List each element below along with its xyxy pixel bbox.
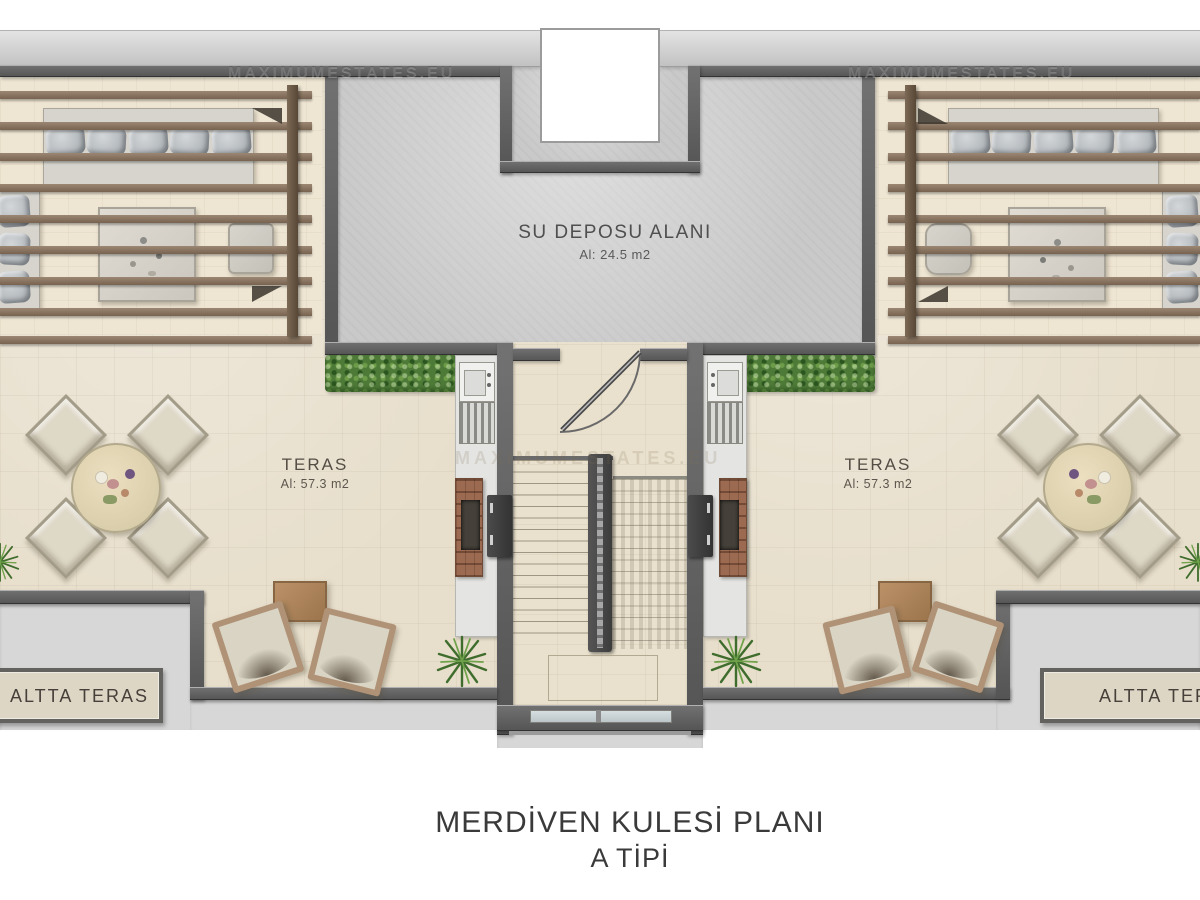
terrace-label-left: TERAS [245,455,385,475]
corner-plant [433,632,491,690]
sink-unit [459,362,495,402]
pergola-slat [0,277,312,285]
pergola-slat [0,153,312,161]
sofa-pillow [211,126,252,157]
lower-terrace-label-right: ALTTA TERAS [1099,686,1200,707]
plan-title: MERDİVEN KULESİ PLANI A TİPİ [270,806,990,874]
corner-plant [707,632,765,690]
terrace-step-wall-left [0,590,204,604]
pergola-slat [888,184,1200,192]
bbq-firebox [720,500,739,550]
lower-terrace-panel-left: ALTTA TERAS [0,668,163,723]
sofa-pillow [992,126,1033,156]
pergola-slat [0,215,312,223]
pergola-slat [0,184,312,192]
sofa-pillow [950,126,991,157]
sofa-pillow [1116,126,1157,157]
pergola-slat [888,153,1200,161]
floor-plan-canvas: ALTTA TERAS ALTTA TERAS [0,0,1200,900]
pergola-slat [888,308,1200,316]
sofa-pillow [87,126,128,156]
pergola-slat [888,215,1200,223]
water-tank-wall-left [325,67,338,355]
landing-mat [548,655,658,701]
entrance-sill [509,731,691,735]
outdoor-sofa [43,108,254,185]
watermark: MAXIMUMESTATES.EU [848,64,1075,82]
outdoor-sofa [948,108,1159,185]
terrace-step-wall-left-vertical [190,590,204,700]
lower-apron-mid-left [190,700,513,730]
hedge-right [742,355,875,392]
water-tank-wall-right [862,67,875,355]
door-swing [540,340,660,450]
watermark: MAXIMUMESTATES.EU [228,64,455,82]
top-parapet-right [660,30,1200,67]
pergola-bracket [918,108,948,124]
notch-wall-right [688,65,700,173]
grill-unit [707,402,743,444]
sofa-pillow [1075,126,1116,156]
pergola-bracket [918,286,948,302]
pergola-post [905,85,916,337]
pergola-slat [888,277,1200,285]
notch-wall-bottom [500,161,700,173]
terrace-label-right-block: TERAS Al: 57.3 m2 [808,455,948,491]
lower-terrace-panel-right: ALTTA TERAS [1040,668,1200,723]
edge-plant [0,540,22,584]
pergola-post [287,85,298,337]
sofa-pillow [128,126,169,157]
pergola-bracket [252,286,282,302]
watermark: MAXIMUMESTATES.EU [455,448,721,469]
entrance-mullion [596,710,601,722]
entrance-glazing [530,710,672,723]
pergola-slat [0,91,312,99]
pergola-slat [0,336,312,344]
water-tank-label-block: SU DEPOSU ALANI Al: 24.5 m2 [465,222,765,262]
bbq-firebox [461,500,480,550]
hedge-left [325,355,458,392]
pergola-bracket [252,108,282,124]
dining-table [71,443,161,533]
sink-unit [707,362,743,402]
edge-plant [1176,540,1200,584]
sofa-pillow [170,126,211,156]
pergola-slat [0,308,312,316]
terrace-area-left: Al: 57.3 m2 [245,477,385,491]
pergola-slat [888,336,1200,344]
wall-insert-unit [688,495,713,557]
notch-wall-left [500,65,512,173]
terrace-label-right: TERAS [808,455,948,475]
top-parapet-left [0,30,540,67]
sofa-pillow [1033,126,1074,157]
sofa-pillow [1165,270,1199,304]
lower-terrace-label-left: ALTTA TERAS [10,686,149,707]
pergola-slat [888,91,1200,99]
pergola-slat [888,246,1200,254]
wall-insert-unit [487,495,512,557]
grill-unit [459,402,495,444]
lower-apron-mid-right [687,700,1010,730]
water-tank-label: SU DEPOSU ALANI [465,222,765,244]
stair-center-rail [588,454,612,652]
sofa-pillow [0,270,31,304]
terrace-area-right: Al: 57.3 m2 [808,477,948,491]
pergola-slat [0,246,312,254]
roof-notch [540,28,660,143]
dining-table [1043,443,1133,533]
stair-flight-left [513,460,588,638]
sofa-pillow [45,126,86,157]
water-tank-area: Al: 24.5 m2 [465,247,765,262]
terrace-label-left-block: TERAS Al: 57.3 m2 [245,455,385,491]
plan-title-line1: MERDİVEN KULESİ PLANI [270,806,990,840]
terrace-step-wall-right-vertical [996,590,1010,700]
stair-flight-right [612,479,687,649]
terrace-step-wall-right [996,590,1200,604]
plan-title-line2: A TİPİ [270,843,990,874]
